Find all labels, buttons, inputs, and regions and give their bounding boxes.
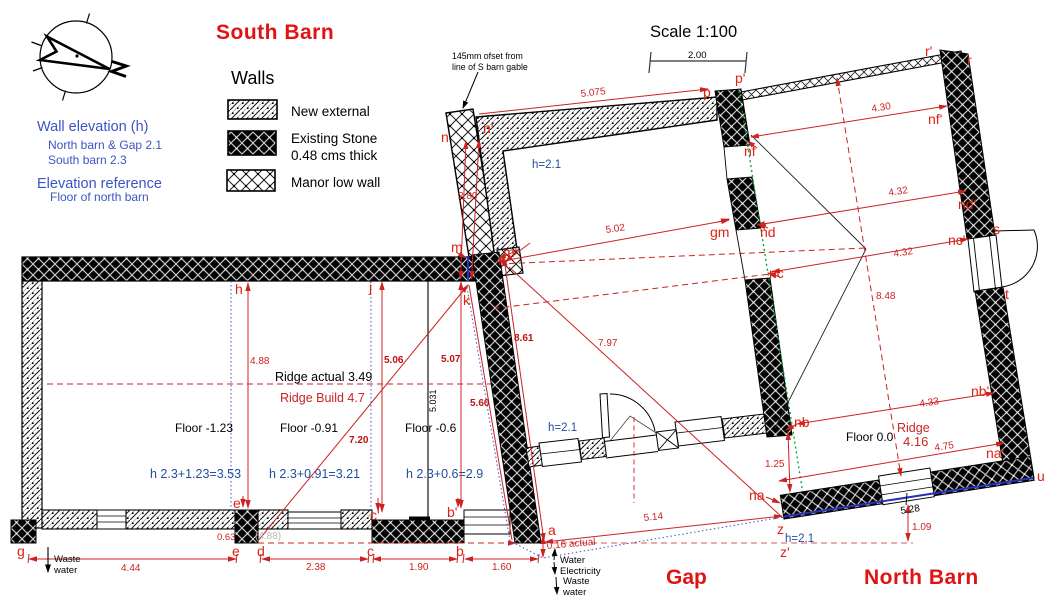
svg-text:nc: nc	[769, 265, 784, 281]
svg-text:na: na	[749, 487, 765, 503]
svg-text:r': r'	[925, 43, 932, 59]
svg-text:South barn 2.3: South barn 2.3	[48, 153, 127, 167]
svg-text:a: a	[548, 522, 556, 538]
svg-text:Floor 0.0: Floor 0.0	[846, 430, 894, 444]
svg-text:b: b	[456, 543, 464, 559]
svg-text:North barn & Gap 2.1: North barn & Gap 2.1	[48, 138, 162, 152]
svg-text:e: e	[232, 543, 240, 559]
svg-text:s: s	[993, 221, 1000, 237]
svg-text:4.44: 4.44	[121, 563, 141, 574]
svg-text:8.48: 8.48	[876, 291, 896, 302]
svg-text:7.20: 7.20	[349, 435, 369, 446]
svg-text:5.031: 5.031	[428, 389, 438, 412]
svg-text:7.97: 7.97	[598, 338, 618, 349]
svg-text:1.25: 1.25	[765, 459, 785, 470]
svg-text:h=2.1: h=2.1	[785, 533, 814, 545]
svg-text:Gap: Gap	[666, 566, 707, 589]
svg-text:2.00: 2.00	[688, 50, 707, 61]
svg-text:Scale 1:100: Scale 1:100	[650, 23, 737, 41]
svg-text:k: k	[463, 292, 471, 308]
svg-text:nd': nd'	[958, 196, 976, 212]
svg-text:0.63: 0.63	[217, 532, 236, 543]
svg-text:n: n	[441, 129, 449, 145]
svg-text:r: r	[967, 52, 972, 68]
svg-text:5.60: 5.60	[470, 398, 490, 409]
svg-text:Floor -0.91: Floor -0.91	[280, 421, 338, 435]
svg-text:line of S barn gable: line of S barn gable	[452, 62, 528, 72]
svg-text:Floor -0.6: Floor -0.6	[405, 421, 457, 435]
svg-text:h 2.3+1.23=3.53: h 2.3+1.23=3.53	[150, 467, 241, 481]
svg-text:u: u	[1037, 468, 1045, 484]
svg-text:Waste: Waste	[54, 554, 81, 565]
svg-text:z: z	[777, 521, 784, 537]
svg-text:z': z'	[780, 544, 790, 560]
svg-text:c': c'	[370, 507, 380, 523]
svg-text:t: t	[1005, 286, 1009, 302]
svg-text:4.88: 4.88	[250, 356, 270, 367]
svg-text:5.06: 5.06	[384, 355, 404, 366]
svg-text:h: h	[235, 281, 243, 297]
svg-text:m: m	[451, 239, 463, 255]
svg-text:Wall elevation (h): Wall elevation (h)	[37, 119, 148, 135]
svg-text:North Barn: North Barn	[864, 566, 979, 589]
svg-text:145mm ofset from: 145mm ofset from	[452, 51, 523, 61]
svg-text:m': m'	[503, 244, 517, 260]
svg-text:nf': nf'	[928, 111, 942, 127]
svg-text:p': p'	[735, 70, 745, 86]
svg-text:nb: nb	[794, 414, 810, 430]
svg-text:8.61: 8.61	[514, 333, 534, 344]
svg-text:1.90: 1.90	[409, 562, 429, 573]
svg-text:Ridge Build 4.7: Ridge Build 4.7	[280, 391, 365, 405]
svg-text:2.38: 2.38	[306, 562, 326, 573]
svg-text:c: c	[367, 543, 374, 559]
svg-text:nb': nb'	[971, 383, 989, 399]
svg-text:4.16: 4.16	[903, 434, 928, 449]
svg-text:Water: Water	[560, 555, 585, 566]
svg-text:New external: New external	[291, 104, 370, 119]
svg-text:5.07: 5.07	[441, 354, 461, 365]
svg-text:na': na'	[986, 445, 1004, 461]
svg-text:Floor -1.23: Floor -1.23	[175, 421, 233, 435]
svg-text:South Barn: South Barn	[216, 21, 334, 44]
svg-text:g: g	[17, 543, 25, 559]
svg-text:d: d	[257, 543, 265, 559]
svg-text:h=2.1: h=2.1	[548, 422, 577, 434]
svg-text:nc': nc'	[948, 232, 965, 248]
svg-text:j: j	[368, 279, 372, 295]
svg-text:gm: gm	[710, 224, 729, 240]
svg-text:2.80: 2.80	[458, 191, 478, 202]
svg-text:0.48 cms thick: 0.48 cms thick	[291, 148, 378, 163]
svg-text:water: water	[53, 565, 77, 576]
svg-text:Existing Stone: Existing Stone	[291, 131, 377, 146]
svg-text:1.09: 1.09	[912, 522, 932, 533]
svg-text:Walls: Walls	[231, 68, 274, 88]
svg-text:h 2.3+0.91=3.21: h 2.3+0.91=3.21	[269, 467, 360, 481]
svg-text:Waste: Waste	[563, 576, 590, 587]
svg-text:1.60: 1.60	[492, 562, 512, 573]
svg-text:(4.88): (4.88)	[255, 531, 281, 542]
svg-text:h=2.1: h=2.1	[532, 159, 561, 171]
svg-text:Manor low wall: Manor low wall	[291, 175, 380, 190]
svg-text:e': e'	[233, 495, 243, 511]
svg-text:Ridge: Ridge	[897, 421, 930, 435]
svg-text:Floor of north barn: Floor of north barn	[50, 190, 149, 204]
svg-text:b': b'	[447, 504, 457, 520]
svg-text:nd: nd	[760, 224, 776, 240]
svg-text:Ridge actual 3.49: Ridge actual 3.49	[275, 370, 372, 384]
svg-text:water: water	[562, 587, 586, 598]
svg-text:5.14: 5.14	[643, 511, 664, 524]
svg-text:p: p	[703, 84, 711, 100]
svg-text:h 2.3+0.6=2.9: h 2.3+0.6=2.9	[406, 467, 483, 481]
svg-text:n': n'	[483, 120, 493, 136]
svg-text:nf: nf	[744, 143, 756, 159]
